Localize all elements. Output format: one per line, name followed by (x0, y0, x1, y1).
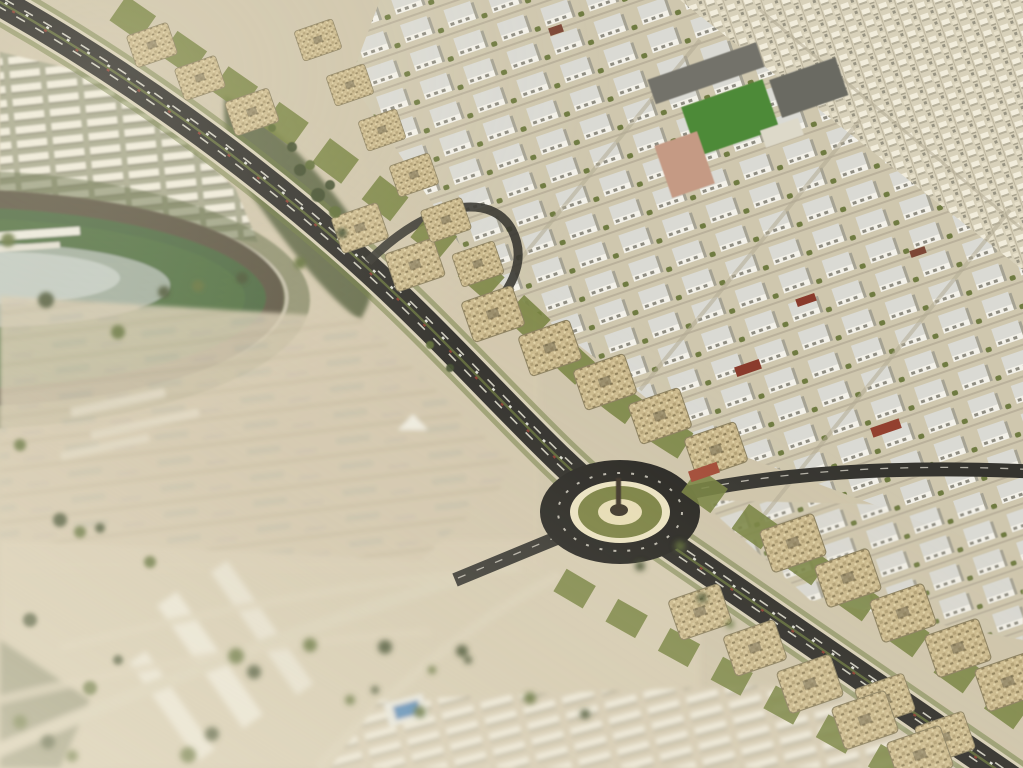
light-glow (0, 0, 1023, 768)
city-masterplan-render (0, 0, 1023, 768)
aerial-render-stage (0, 0, 1023, 768)
